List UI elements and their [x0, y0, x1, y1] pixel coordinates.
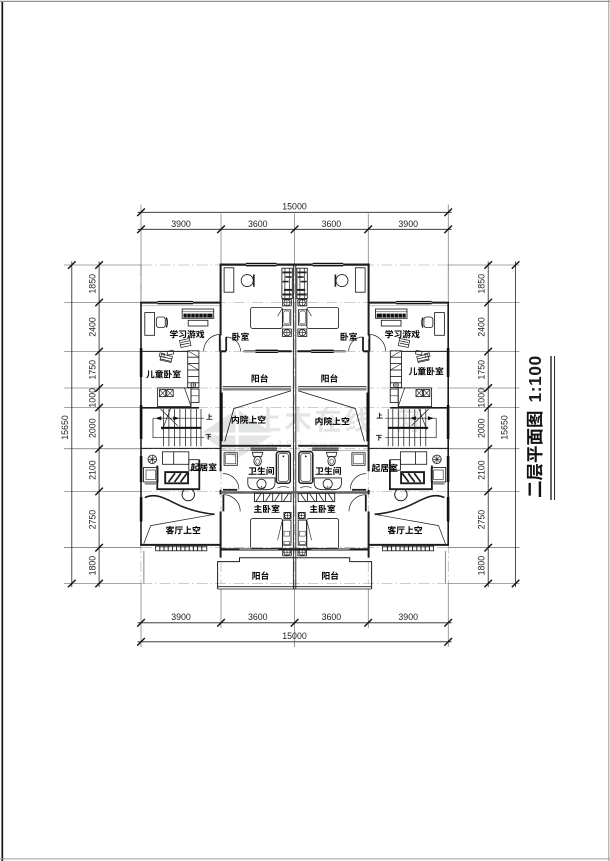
svg-text:2100: 2100: [477, 460, 487, 480]
svg-text:15650: 15650: [500, 415, 510, 440]
svg-text:1850: 1850: [88, 274, 98, 294]
svg-text:1800: 1800: [88, 556, 98, 576]
svg-text:3900: 3900: [171, 612, 191, 622]
svg-text:1000: 1000: [88, 388, 98, 408]
svg-text:1800: 1800: [477, 556, 487, 576]
svg-text:3600: 3600: [248, 612, 268, 622]
svg-text:1750: 1750: [477, 360, 487, 380]
svg-text:2750: 2750: [477, 510, 487, 530]
svg-text:3900: 3900: [398, 219, 418, 229]
svg-text:3600: 3600: [322, 612, 342, 622]
svg-text:2400: 2400: [88, 317, 98, 337]
svg-text:1:100: 1:100: [525, 355, 545, 402]
svg-text:1850: 1850: [477, 274, 487, 294]
svg-text:15000: 15000: [282, 202, 307, 212]
svg-text:15650: 15650: [60, 415, 70, 440]
svg-text:2100: 2100: [88, 460, 98, 480]
svg-text:2000: 2000: [477, 418, 487, 438]
svg-text:2000: 2000: [88, 418, 98, 438]
svg-text:3900: 3900: [171, 219, 191, 229]
svg-text:2750: 2750: [88, 510, 98, 530]
svg-text:3600: 3600: [248, 219, 268, 229]
svg-text:15000: 15000: [282, 631, 307, 641]
svg-text:2400: 2400: [477, 317, 487, 337]
svg-text:3900: 3900: [398, 612, 418, 622]
svg-text:1750: 1750: [88, 360, 98, 380]
svg-text:1000: 1000: [477, 388, 487, 408]
svg-text:3600: 3600: [322, 219, 342, 229]
